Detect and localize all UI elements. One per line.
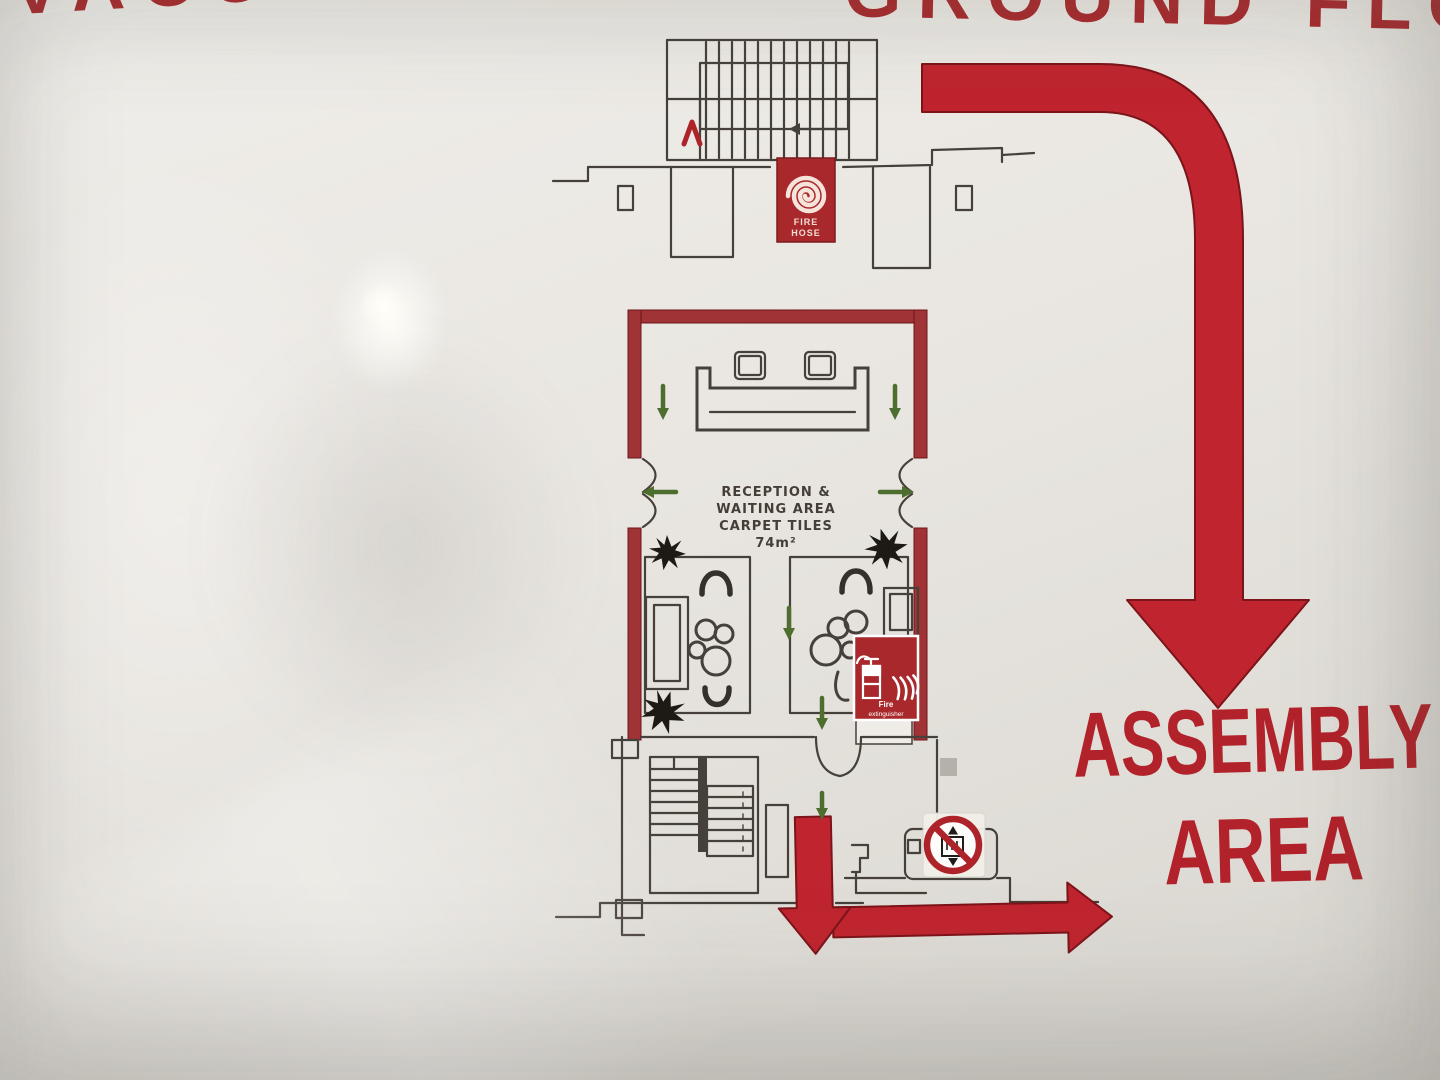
extinguisher-label-2: extinguisher (868, 711, 904, 718)
stair-divider (698, 757, 707, 852)
extinguisher-label-1: Fire (879, 700, 894, 709)
sign-pedestal (856, 718, 912, 744)
side-table (884, 588, 918, 636)
plant-icon (860, 523, 912, 574)
wall-right-upper (914, 310, 927, 458)
assembly-area-line-2: AREA (1163, 797, 1366, 904)
corridor-wall-left (671, 167, 733, 257)
plan-title-left-fragment: EVACUATION (0, 0, 585, 30)
room-label-line-4: 74m² (755, 536, 796, 551)
green-direction-arrow (657, 386, 669, 420)
room-label: RECEPTION & WAITING AREA CARPET TILES 74… (716, 485, 835, 551)
room-label-line-3: CARPET TILES (719, 519, 833, 534)
armchair (842, 571, 870, 592)
fire-hose-label-2: HOSE (791, 228, 821, 238)
seat-curve (836, 672, 848, 700)
upper-stairwell (667, 40, 877, 160)
wall-left-lower (628, 528, 641, 740)
elevator-zone (845, 740, 1098, 902)
evacuation-floor-plan: FIRE HOSE ASSEMBLY AREA (0, 0, 1440, 1080)
fire-extinguisher-sign: Fire extinguisher (854, 636, 921, 744)
assembly-area-label: ASSEMBLY AREA (1072, 685, 1437, 906)
desk-chair (805, 352, 835, 379)
duct (940, 758, 957, 776)
reception-room: RECEPTION & WAITING AREA CARPET TILES 74… (628, 310, 927, 744)
wall-segment (845, 878, 1098, 902)
plant-icon (635, 684, 692, 740)
evacuation-plan-photo: EVACUATION GROUND FLOOR (0, 0, 1440, 1080)
armchair (705, 688, 729, 705)
green-direction-arrow (783, 608, 795, 640)
stair-up-chevron-icon (684, 122, 700, 144)
plant-icon (649, 535, 686, 570)
no-elevator-sign (923, 813, 985, 877)
exterior-wall-left (612, 737, 644, 935)
plan-title-strip: EVACUATION GROUND FLOOR (0, 0, 1440, 40)
elevator-detail (908, 840, 920, 853)
lower-stairwell (650, 757, 758, 893)
column (956, 186, 972, 210)
green-direction-arrow (889, 386, 901, 420)
door-swing-bottom (816, 737, 861, 776)
coffee-tables (689, 620, 733, 675)
room-label-line-2: WAITING AREA (716, 502, 835, 517)
column (766, 805, 788, 877)
wall-segment (553, 167, 770, 181)
corridor-wall-right (873, 167, 930, 268)
red-evacuation-arrow-main (922, 64, 1309, 708)
column (618, 186, 633, 210)
desk-chair (735, 352, 765, 379)
wall-top (628, 310, 927, 323)
fire-hose-label-1: FIRE (794, 217, 819, 227)
waiting-area-left (635, 535, 750, 740)
reception-desk (697, 352, 868, 430)
fire-hose-sign: FIRE HOSE (777, 158, 835, 242)
room-label-line-1: RECEPTION & (721, 485, 830, 500)
wall-left-upper (628, 310, 641, 458)
armchair (702, 573, 730, 594)
wall-segment (843, 148, 1034, 167)
assembly-area-line-1: ASSEMBLY (1072, 685, 1435, 796)
sofa (646, 597, 688, 689)
plan-title-right-fragment: GROUND FLOOR (843, 0, 1440, 40)
